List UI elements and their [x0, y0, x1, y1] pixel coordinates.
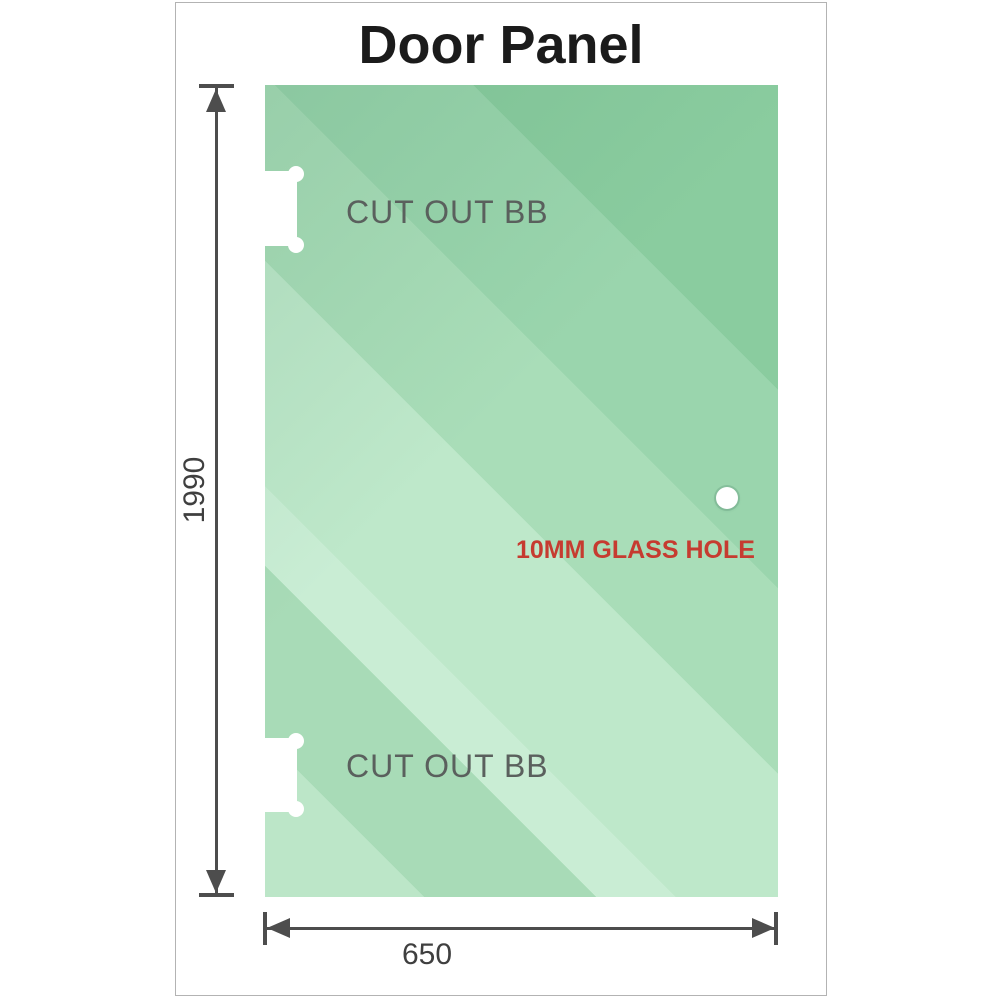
hinge-cutout-top-upper-knob: [288, 166, 304, 182]
hinge-cutout-bottom-upper-knob: [288, 733, 304, 749]
glass-hole: [716, 487, 738, 509]
cutout-top-label: CUT OUT BB: [346, 194, 546, 231]
width-dimension-right-tick: [774, 912, 778, 945]
height-dimension-line: [215, 87, 218, 894]
cutout-bottom-label: CUT OUT BB: [346, 748, 546, 785]
width-dimension-left-arrow-icon: [267, 918, 290, 938]
width-dimension-line: [267, 927, 775, 930]
glass-hole-label: 10MM GLASS HOLE: [516, 536, 755, 565]
diagram-title: Door Panel: [175, 14, 827, 76]
height-dimension-down-arrow-icon: [206, 870, 226, 893]
door-panel-diagram: Door Panel CUT OUT BB CUT OUT BB 10MM GL…: [0, 0, 1000, 1000]
height-dimension-value: 1990: [178, 445, 208, 535]
width-dimension-right-arrow-icon: [752, 918, 775, 938]
width-dimension-value: 650: [377, 938, 477, 972]
hinge-cutout-top-lower-knob: [288, 237, 304, 253]
height-dimension-up-arrow-icon: [206, 89, 226, 112]
hinge-cutout-top: [265, 171, 297, 246]
hinge-cutout-bottom-lower-knob: [288, 801, 304, 817]
height-dimension-bottom-tick: [199, 893, 234, 897]
